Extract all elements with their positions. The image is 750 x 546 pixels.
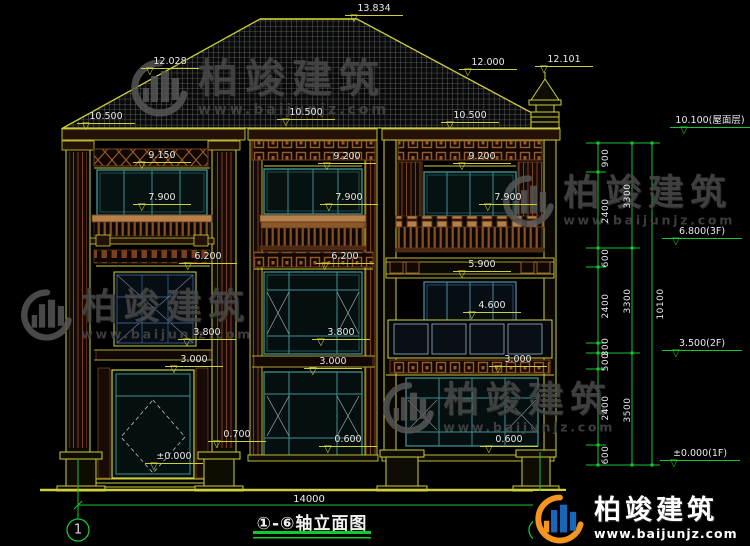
chimney — [529, 72, 561, 128]
right-section — [382, 140, 556, 461]
site-logo: 柏竣建筑 www.baijunjz.com — [533, 491, 750, 546]
dim-chain-label: 2400 — [601, 199, 611, 224]
site-logo-brand: 柏竣建筑 — [594, 497, 738, 524]
dim-chain-label: 3300 — [623, 184, 633, 209]
axis-bubble-1: 1 — [74, 523, 82, 538]
overall-width-dimension: 14000 — [293, 494, 325, 505]
center-section — [248, 140, 378, 461]
left-wing — [62, 140, 240, 487]
site-logo-url: www.baijunjz.com — [594, 526, 738, 541]
dim-chain-label: 600 — [601, 249, 611, 268]
dim-chain-label: 600 — [601, 446, 611, 465]
dim-chain-label: 10100 — [656, 288, 666, 319]
site-logo-icon — [533, 493, 587, 545]
dim-chain-label: 3500 — [623, 398, 633, 423]
drawing-title: ①-⑥轴立面图 — [257, 509, 368, 534]
cad-canvas: 柏竣建筑 www.baijunjz.com 柏竣建筑 www.baijunjz.… — [0, 0, 750, 546]
dim-chain-label: 500 — [601, 353, 611, 372]
roof — [63, 19, 560, 128]
dim-chain-label: 3300 — [623, 289, 633, 314]
elevation-drawing — [0, 0, 750, 546]
dim-chain-label: 2400 — [601, 396, 611, 421]
dim-chain-label: 900 — [601, 149, 611, 168]
dim-chain-label: 2400 — [601, 294, 611, 319]
eave-fascia — [62, 129, 560, 140]
